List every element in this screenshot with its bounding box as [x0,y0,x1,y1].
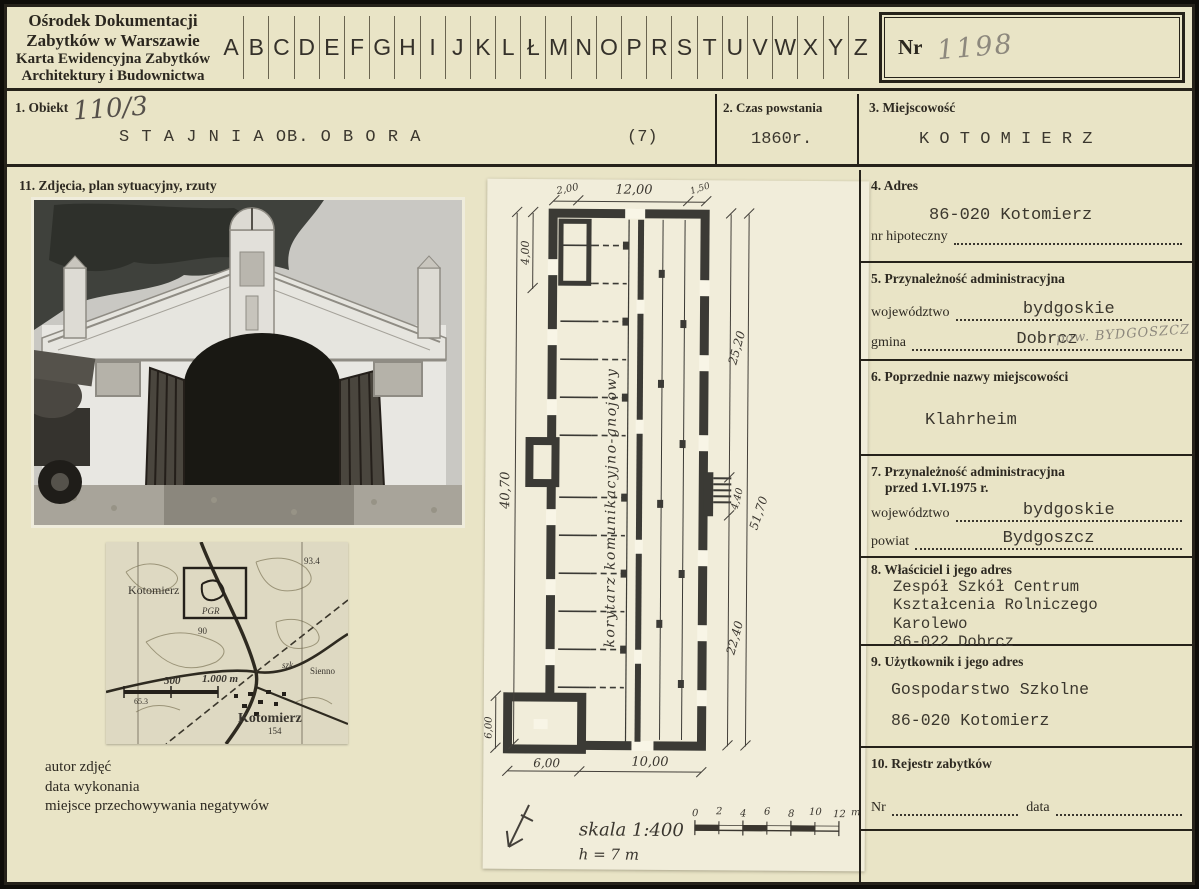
plan-height-text: h = 7 m [579,845,639,863]
field-przyn-przed-label2: przed 1.VI.1975 r. [885,480,1182,496]
building-photograph [34,200,462,525]
institution-line: Architektury i Budownictwa [11,68,215,85]
dim-left-bottom: 6,00 [484,716,495,739]
title-row: 1. Obiekt 110/3 S T A J N I A OB. O B O … [7,94,1192,167]
alphabet-letter: U [722,16,747,79]
institution-line: Ośrodek Dokumentacji [11,11,215,31]
field-obiekt-handwritten: 110/3 [72,91,149,126]
scalebar-tick: 4 [739,808,746,819]
field-wlasciciel: 8. Właściciel i jego adres Zespół Szkół … [861,558,1192,646]
field-obiekt-label: 1. Obiekt [15,100,68,116]
field-czas-value: 1860r. [751,130,812,149]
alphabet-letter: N [571,16,596,79]
alphabet-letter: T [697,16,722,79]
photos-plans-zone: 11. Zdjęcia, plan sytuacyjny, rzuty [7,170,859,882]
powiat-label: powiat [871,534,909,550]
card-number-value: 1198 [935,29,1014,67]
floor-plan-drawing: 2,00 12,00 1,50 4,00 40,70 6,00 25,20 4,… [483,179,870,872]
floor-plan-sheet: 2,00 12,00 1,50 4,00 40,70 6,00 25,20 4,… [483,179,870,872]
alphabet-letter: A [219,16,243,79]
field-poprzednie-label: 6. Poprzednie nazwy miejscowości [871,369,1182,385]
field-miejscowosc-value: K O T O M I E R Z [919,130,1092,149]
alphabet-letter: O [596,16,621,79]
field-przynaleznosc-label: 5. Przynależność administracyjna [871,271,1182,287]
field-obiekt-suffix: (7) [627,128,658,147]
alphabet-letter: E [319,16,344,79]
alphabet-letter: J [445,16,470,79]
institution-line: Karta Ewidencyjna Zabytków [11,51,215,68]
scalebar-tick: 2 [715,806,722,817]
field-adres-label: 4. Adres [871,178,1182,194]
alphabet-letter: L [495,16,520,79]
record-card: Ośrodek Dokumentacji Zabytków w Warszawi… [4,4,1195,885]
alphabet-letter: P [621,16,646,79]
dim-bottom-right: 10,00 [631,755,668,770]
main-area: 11. Zdjęcia, plan sytuacyjny, rzuty [7,170,1192,882]
scalebar-tick: 8 [788,809,794,820]
field-czas-powstania: 2. Czas powstania 1860r. [717,94,859,164]
map-town-label: Kotomierz [128,583,179,597]
alphabet-index: A B C D E F G H I J K L Ł M N O P R S T … [219,7,873,88]
alphabet-letter: K [470,16,495,79]
field-przynaleznosc: 5. Przynależność administracyjna wojewód… [861,263,1192,361]
field-uzytkownik: 9. Użytkownik i jego adres Gospodarstwo … [861,646,1192,748]
alphabet-letter: V [747,16,772,79]
alphabet-letter: D [294,16,319,79]
wojewodztwo-1975-label: województwo [871,506,950,522]
rejestr-nr-label: Nr [871,800,886,816]
field-obiekt-value: S T A J N I A OB. O B O R A [119,128,421,147]
dim-right-mid: 4,40 [729,486,746,512]
dim-top-center: 12,00 [615,183,652,198]
rejestr-data-label: data [1026,800,1049,816]
field-przyn-przed-label1: 7. Przynależność administracyjna [871,464,1182,480]
map-school-label: szk. [282,660,295,670]
card-number-label: Nr [898,35,923,60]
map-contour-label: 90 [198,626,208,636]
field-obiekt: 1. Obiekt 110/3 S T A J N I A OB. O B O … [7,94,717,164]
wojewodztwo-1975-value: bydgoskie [1023,501,1115,520]
gmina-label: gmina [871,335,906,351]
rejestr-nr-line [892,813,1018,816]
map-site-label: PGR [201,606,220,616]
alphabet-letter: R [646,16,671,79]
alphabet-letter: M [545,16,570,79]
alphabet-letter: Y [823,16,848,79]
alphabet-letter: H [394,16,419,79]
caption-line: autor zdjęć [45,758,269,778]
alphabet-letter: C [268,16,293,79]
photo-captions: autor zdjęć data wykonania miejsce przec… [45,758,269,817]
field-miejscowosc-label: 3. Miejscowość [869,100,955,116]
field-rejestr: 10. Rejestr zabytków Nr data [861,748,1192,831]
owner-line: Zespół Szkół Centrum [893,578,1182,596]
wojewodztwo-label: województwo [871,305,950,321]
alphabet-letter: Ł [520,16,545,79]
dim-bottom-left: 6,00 [533,756,560,770]
caption-line: miejsce przechowywania negatywów [45,797,269,817]
corridor-label: korytarz komunikacyjno-gnojowy [602,368,620,648]
powiat-value: Bydgoszcz [1003,529,1095,548]
alphabet-letter: I [420,16,445,79]
user-line: 86-020 Kotomierz [891,711,1182,730]
field-przynaleznosc-przed-1975: 7. Przynależność administracyjna przed 1… [861,456,1192,558]
nr-hipoteczny-label: nr hipoteczny [871,229,948,245]
north-arrow [507,805,533,847]
field-adres-value: 86-020 Kotomierz [929,206,1182,225]
field-zdjecia-label: 11. Zdjęcia, plan sytuacyjny, rzuty [19,178,217,194]
alphabet-letter: G [369,16,394,79]
alphabet-letter: X [797,16,822,79]
dim-right-lower: 22,40 [723,619,746,657]
owner-line: Karolewo [893,615,1182,633]
alphabet-letter: S [671,16,696,79]
field-wlasciciel-label: 8. Właściciel i jego adres [871,562,1182,578]
caption-line: data wykonania [45,778,269,798]
plan-scale-text: skala 1:400 [579,819,684,841]
alphabet-letter: B [243,16,268,79]
rejestr-data-line [1056,813,1182,816]
map-sienno-label: Sienno [310,666,336,676]
plan-scalebar [695,820,839,836]
alphabet-letter: F [344,16,369,79]
map-town-bottom-label: Kotomierz [238,711,302,726]
dim-right-total: 51,70 [747,494,771,531]
user-line: Gospodarstwo Szkolne [891,680,1182,699]
map-illustration: Kotomierz 93.4 90 PGR szk. Sienno Kotomi… [106,542,348,744]
owner-line: Kształcenia Rolniczego [893,596,1182,614]
scalebar-tick: 10 [809,807,822,818]
dim-left-mid: 40,70 [498,472,513,510]
scalebar-tick: 0 [692,808,699,819]
dim-right-upper: 25,20 [725,329,748,367]
institution-line: Zabytków w Warszawie [11,31,215,51]
field-czas-label: 2. Czas powstania [723,100,822,116]
wojewodztwo-value: bydgoskie [1023,300,1115,319]
scalebar-tick: 6 [764,807,771,818]
details-column: 4. Adres 86-020 Kotomierz nr hipoteczny … [859,170,1192,882]
dim-top-right: 1,50 [689,181,711,197]
situation-map: Kotomierz 93.4 90 PGR szk. Sienno Kotomi… [106,542,348,744]
dim-left-top: 4,00 [519,240,532,266]
map-scale-1000: 1.000 m [202,673,239,685]
map-elevation-label: 154 [268,726,282,736]
field-poprzednie-value: Klahrheim [925,411,1182,430]
map-scale-500: 500 [164,675,181,687]
field-miejscowosc: 3. Miejscowość K O T O M I E R Z [859,94,1192,164]
institution-block: Ośrodek Dokumentacji Zabytków w Warszawi… [7,7,219,88]
photo-illustration [34,200,462,525]
card-number-box: Nr 1198 [879,12,1185,83]
field-poprzednie-nazwy: 6. Poprzednie nazwy miejscowości Klahrhe… [861,361,1192,456]
empty-space [861,831,1192,882]
scalebar-tick: 12 [833,809,846,820]
header: Ośrodek Dokumentacji Zabytków w Warszawi… [7,7,1192,91]
field-rejestr-label: 10. Rejestr zabytków [871,756,1182,772]
field-uzytkownik-label: 9. Użytkownik i jego adres [871,654,1182,670]
nr-hipoteczny-line [954,242,1182,245]
field-adres: 4. Adres 86-020 Kotomierz nr hipoteczny [861,170,1192,263]
alphabet-letter: W [772,16,797,79]
map-spot-height: 93.4 [304,556,320,566]
alphabet-letter: Z [848,16,873,79]
map-benchmark: 65.3 [134,697,148,706]
dim-top-left: 2,00 [555,182,581,198]
scanned-card: Ośrodek Dokumentacji Zabytków w Warszawi… [0,0,1199,889]
